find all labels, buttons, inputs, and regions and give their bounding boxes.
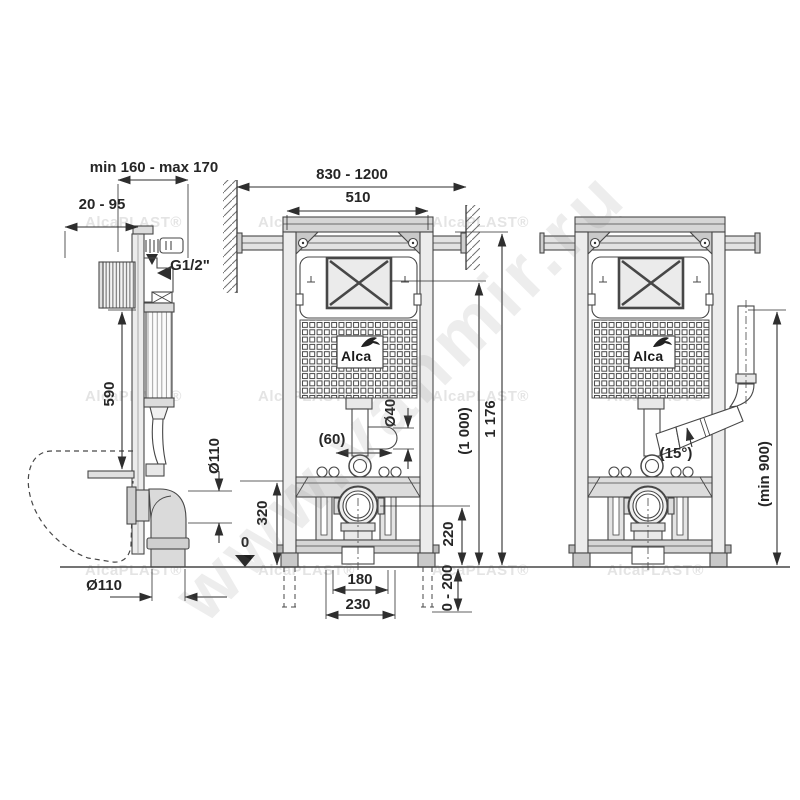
dim-bracket-height: 320 (254, 491, 272, 535)
dim-drain-height: 220 (440, 512, 458, 556)
label-floor-level: 0 (237, 534, 253, 552)
dim-depth-range: min 160 - max 170 (88, 159, 220, 177)
dim-elbow-diameter: Ø110 (206, 430, 224, 482)
dim-leg-range: 0 - 200 (439, 559, 457, 617)
floor-level-icon (235, 555, 255, 567)
valve-arrow-icon (146, 254, 158, 265)
dim-outlet-diameter: Ø110 (74, 577, 134, 595)
dim-total-height: 1 176 (482, 391, 500, 447)
wc-bowl-outline (28, 451, 133, 562)
dim-pipe-angle: (15°) (652, 445, 700, 463)
dim-outlet-spacing: 230 (337, 596, 379, 614)
dim-flush-offset: (60) (312, 431, 352, 449)
dim-bolt-spacing: 180 (340, 571, 380, 589)
dim-flush-diameter: Ø40 (382, 391, 400, 435)
dim-plate-height: (1 000) (456, 398, 474, 464)
outlet-view (540, 217, 760, 570)
installation-frame-drawing (0, 0, 800, 800)
dim-front-offset: 20 - 95 (68, 196, 136, 214)
dim-rail-span: 830 - 1200 (288, 166, 416, 184)
dim-flush-height: 590 (101, 372, 119, 416)
dim-standpipe-height: (min 900) (756, 430, 774, 518)
alca-logo: Alca (341, 348, 371, 364)
technical-drawing-page: AlcaPLAST® AlcaPLAST® AlcaPLAST® AlcaPLA… (0, 0, 800, 800)
label-water-thread: G1/2" (167, 257, 213, 275)
alca-logo: Alca (633, 348, 663, 364)
dim-frame-width: 510 (330, 189, 386, 207)
